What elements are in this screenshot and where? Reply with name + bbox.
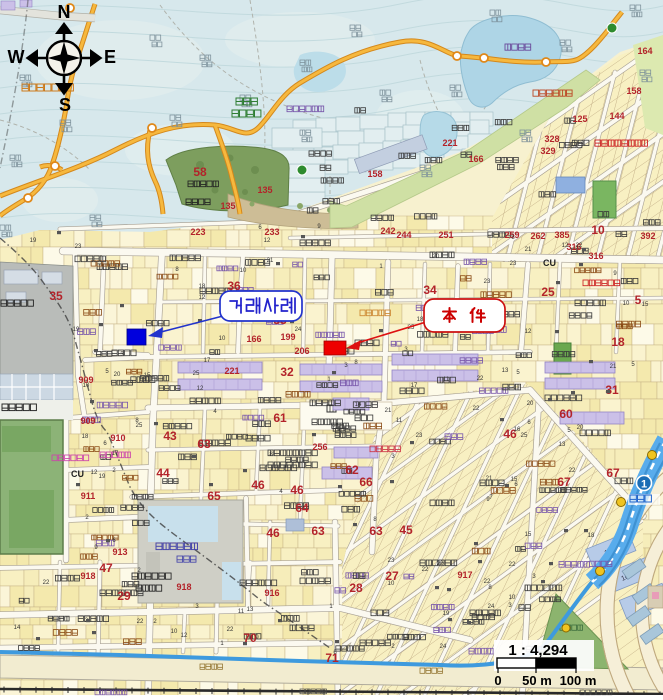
svg-text:262: 262	[530, 231, 545, 241]
svg-text:17: 17	[411, 383, 418, 389]
svg-text:21: 21	[525, 247, 532, 253]
svg-text:28: 28	[349, 581, 363, 595]
svg-text:911: 911	[81, 491, 96, 501]
svg-text:65: 65	[207, 489, 221, 503]
svg-text:918: 918	[80, 571, 95, 581]
svg-text:22: 22	[227, 627, 234, 633]
svg-text:221: 221	[442, 138, 457, 148]
svg-text:22: 22	[437, 561, 444, 567]
svg-text:316: 316	[588, 251, 603, 261]
svg-text:23: 23	[510, 261, 517, 267]
svg-text:22: 22	[422, 567, 429, 573]
svg-text:18: 18	[611, 335, 625, 349]
svg-text:329: 329	[540, 146, 555, 156]
svg-text:10: 10	[591, 223, 605, 237]
svg-text:43: 43	[163, 429, 177, 443]
svg-text:385: 385	[554, 230, 569, 240]
svg-text:242: 242	[380, 226, 395, 236]
svg-text:135: 135	[220, 201, 235, 211]
svg-text:10: 10	[509, 595, 516, 601]
svg-text:5: 5	[635, 293, 642, 307]
svg-text:20: 20	[433, 254, 440, 260]
svg-text:23: 23	[388, 558, 395, 564]
svg-text:233: 233	[264, 227, 279, 237]
svg-text:1: 1	[641, 479, 647, 491]
svg-text:20: 20	[577, 425, 584, 431]
svg-text:14: 14	[355, 402, 362, 408]
svg-text:58: 58	[193, 165, 207, 179]
svg-text:14: 14	[14, 625, 21, 631]
svg-text:15: 15	[144, 373, 151, 379]
svg-text:45: 45	[399, 523, 413, 537]
svg-text:12: 12	[181, 633, 188, 639]
svg-text:CU: CU	[543, 258, 556, 268]
svg-text:N: N	[58, 2, 71, 22]
svg-text:17: 17	[204, 358, 211, 364]
svg-text:12: 12	[264, 238, 271, 244]
svg-text:24: 24	[295, 327, 302, 333]
svg-text:23: 23	[484, 279, 491, 285]
svg-text:19: 19	[73, 327, 80, 333]
svg-text:22: 22	[569, 468, 576, 474]
svg-text:244: 244	[396, 230, 411, 240]
svg-text:909: 909	[80, 416, 95, 426]
svg-text:23: 23	[416, 433, 423, 439]
svg-text:17: 17	[112, 451, 119, 457]
svg-text:21: 21	[267, 258, 274, 264]
svg-text:18: 18	[588, 533, 595, 539]
svg-text:917: 917	[457, 570, 472, 580]
svg-text:15: 15	[525, 532, 532, 538]
svg-text:166: 166	[246, 334, 261, 344]
svg-text:164: 164	[637, 46, 652, 56]
svg-text:199: 199	[280, 332, 295, 342]
svg-text:10: 10	[83, 383, 90, 389]
svg-text:13: 13	[502, 368, 509, 374]
svg-text:47: 47	[99, 561, 113, 575]
svg-text:125: 125	[572, 114, 587, 124]
svg-text:10: 10	[171, 629, 178, 635]
svg-text:251: 251	[438, 230, 453, 240]
svg-text:22: 22	[509, 562, 516, 568]
svg-text:10: 10	[240, 268, 247, 274]
svg-text:22: 22	[43, 580, 50, 586]
svg-text:24: 24	[440, 644, 447, 650]
svg-text:10: 10	[623, 301, 630, 307]
svg-text:63: 63	[311, 524, 325, 538]
svg-text:910: 910	[110, 433, 125, 443]
svg-text:23: 23	[75, 244, 82, 250]
svg-text:13: 13	[247, 607, 254, 613]
svg-text:25: 25	[193, 371, 200, 377]
svg-text:66: 66	[359, 475, 373, 489]
svg-text:63: 63	[369, 524, 383, 538]
svg-text:71: 71	[325, 651, 339, 665]
svg-text:34: 34	[423, 283, 437, 297]
svg-text:392: 392	[640, 231, 655, 241]
svg-text:50 m: 50 m	[522, 673, 552, 688]
svg-text:67: 67	[557, 475, 571, 489]
svg-text:19: 19	[443, 611, 450, 617]
svg-text:44: 44	[156, 466, 170, 480]
svg-text:158: 158	[367, 169, 382, 179]
svg-text:11: 11	[238, 609, 245, 615]
svg-text:46: 46	[290, 483, 304, 497]
svg-text:46: 46	[251, 478, 265, 492]
svg-text:22: 22	[576, 243, 583, 249]
svg-text:E: E	[104, 47, 116, 67]
svg-text:63: 63	[197, 437, 211, 451]
svg-text:60: 60	[559, 407, 573, 421]
svg-text:25: 25	[521, 433, 528, 439]
svg-text:22: 22	[473, 406, 480, 412]
svg-text:22: 22	[137, 619, 144, 625]
svg-text:158: 158	[626, 86, 641, 96]
svg-text:25: 25	[541, 285, 555, 299]
svg-text:10: 10	[219, 336, 226, 342]
svg-text:29: 29	[117, 589, 131, 603]
svg-text:18: 18	[417, 317, 424, 323]
svg-text:135: 135	[257, 185, 272, 195]
svg-text:12: 12	[199, 295, 206, 301]
svg-text:0: 0	[494, 673, 501, 688]
svg-text:1 : 4,294: 1 : 4,294	[508, 642, 568, 659]
svg-text:10: 10	[388, 581, 395, 587]
svg-text:61: 61	[273, 411, 287, 425]
svg-text:67: 67	[606, 466, 620, 480]
svg-text:S: S	[59, 95, 71, 115]
svg-text:100 m: 100 m	[560, 673, 597, 688]
svg-text:916: 916	[264, 588, 279, 598]
svg-text:21: 21	[610, 364, 617, 370]
svg-text:918: 918	[176, 582, 191, 592]
svg-text:11: 11	[443, 377, 450, 383]
svg-text:12: 12	[562, 243, 569, 249]
svg-text:19: 19	[30, 238, 37, 244]
svg-text:12: 12	[525, 329, 532, 335]
svg-text:21: 21	[486, 476, 493, 482]
svg-text:46: 46	[266, 526, 280, 540]
svg-text:328: 328	[544, 134, 559, 144]
svg-text:35: 35	[49, 289, 63, 303]
svg-text:256: 256	[312, 442, 327, 452]
svg-text:22: 22	[477, 376, 484, 382]
svg-text:913: 913	[112, 547, 127, 557]
svg-text:13: 13	[559, 442, 566, 448]
svg-text:62: 62	[345, 463, 359, 477]
svg-text:21: 21	[385, 408, 392, 414]
svg-text:64: 64	[295, 501, 309, 515]
svg-text:223: 223	[190, 227, 205, 237]
svg-text:18: 18	[82, 434, 89, 440]
svg-text:166: 166	[468, 154, 483, 164]
svg-text:CU: CU	[71, 469, 84, 479]
svg-text:18: 18	[199, 284, 206, 290]
svg-text:12: 12	[91, 470, 98, 476]
svg-text:19: 19	[99, 474, 106, 480]
svg-text:32: 32	[280, 365, 294, 379]
svg-text:11: 11	[396, 418, 403, 424]
svg-text:24: 24	[488, 604, 495, 610]
svg-text:206: 206	[294, 346, 309, 356]
svg-text:20: 20	[527, 401, 534, 407]
svg-text:W: W	[8, 47, 25, 67]
svg-text:12: 12	[197, 386, 204, 392]
svg-text:20: 20	[114, 372, 121, 378]
svg-text:221: 221	[224, 366, 239, 376]
svg-text:144: 144	[609, 111, 624, 121]
svg-text:15: 15	[642, 302, 649, 308]
